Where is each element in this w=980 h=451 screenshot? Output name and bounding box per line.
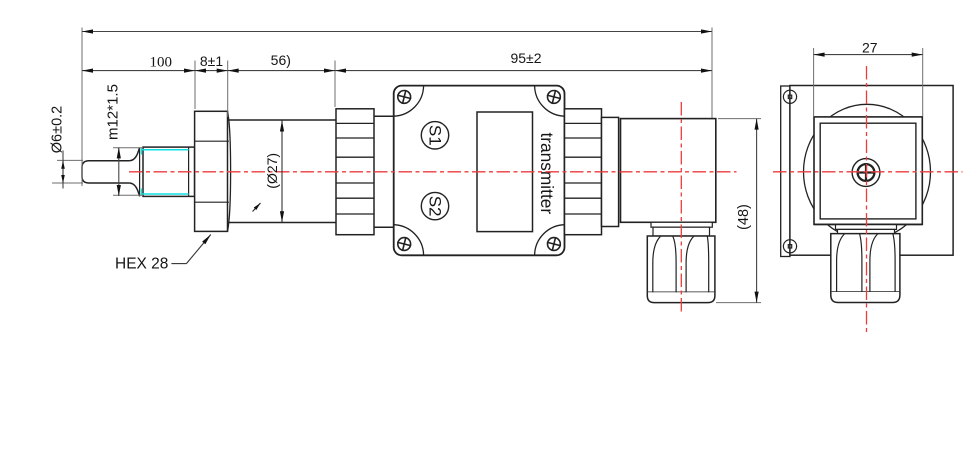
- svg-text:S2: S2: [426, 196, 445, 217]
- svg-text:HEX 28: HEX 28: [115, 256, 168, 273]
- svg-text:transmitter: transmitter: [537, 132, 557, 214]
- svg-text:8±1: 8±1: [200, 53, 223, 69]
- svg-text:(48): (48): [736, 204, 752, 230]
- svg-text:100: 100: [150, 54, 173, 70]
- svg-text:S1: S1: [426, 125, 445, 146]
- svg-text:(Ø27): (Ø27): [264, 153, 280, 189]
- svg-text:56): 56): [271, 52, 291, 68]
- svg-text:Ø6±0.2: Ø6±0.2: [50, 106, 66, 153]
- svg-text:27: 27: [862, 39, 878, 55]
- svg-text:m12*1.5: m12*1.5: [105, 84, 122, 140]
- svg-text:95±2: 95±2: [510, 50, 541, 66]
